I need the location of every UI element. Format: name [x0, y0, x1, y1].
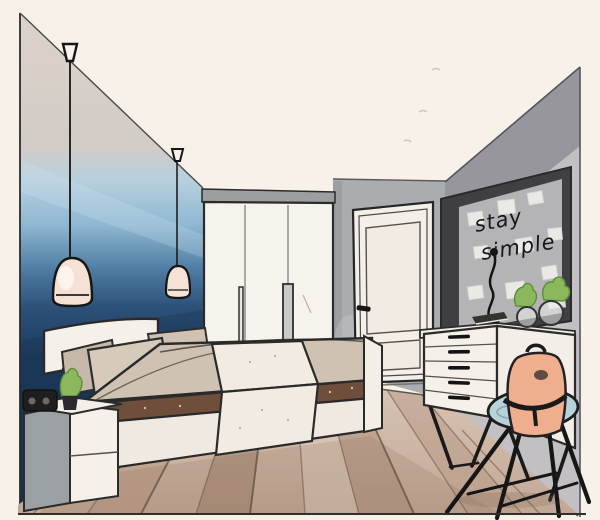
drawer-handle — [448, 335, 470, 339]
drawer-handle — [448, 366, 470, 370]
speckle — [261, 409, 263, 411]
stool-shadow — [460, 492, 560, 508]
speaker-cone — [29, 398, 36, 405]
lamp-shade — [166, 266, 190, 298]
door-panel-upper — [366, 222, 420, 334]
speckle — [239, 427, 241, 429]
drawer-handle — [448, 350, 470, 354]
wardrobe-top-strip — [202, 189, 335, 203]
note — [527, 191, 544, 205]
bedroom-sketch: stay simple — [0, 0, 600, 520]
speckle — [249, 361, 251, 363]
plant-pot — [62, 396, 78, 410]
backpack-pocket — [534, 370, 548, 380]
drawer-handle — [448, 381, 470, 385]
speckle — [179, 405, 181, 407]
speaker — [23, 390, 57, 411]
speckle — [144, 407, 146, 409]
desk-lamp-head — [490, 248, 498, 256]
backpack-strap-end — [534, 406, 536, 426]
speckle — [274, 355, 276, 357]
note — [467, 285, 484, 300]
speckle — [351, 387, 353, 389]
glass-vase — [539, 301, 563, 325]
illustration-canvas: stay simple — [0, 0, 600, 520]
glass-vase — [517, 307, 537, 327]
speckle — [329, 391, 331, 393]
ceiling-mount — [172, 149, 183, 161]
nightstand-side — [24, 404, 70, 511]
speaker-body — [23, 390, 57, 411]
shade-highlight — [58, 266, 74, 290]
dresser-drawer-face — [424, 326, 497, 418]
speaker-cone — [43, 398, 50, 405]
speckle — [287, 419, 289, 421]
bed-foot-board — [364, 336, 382, 432]
